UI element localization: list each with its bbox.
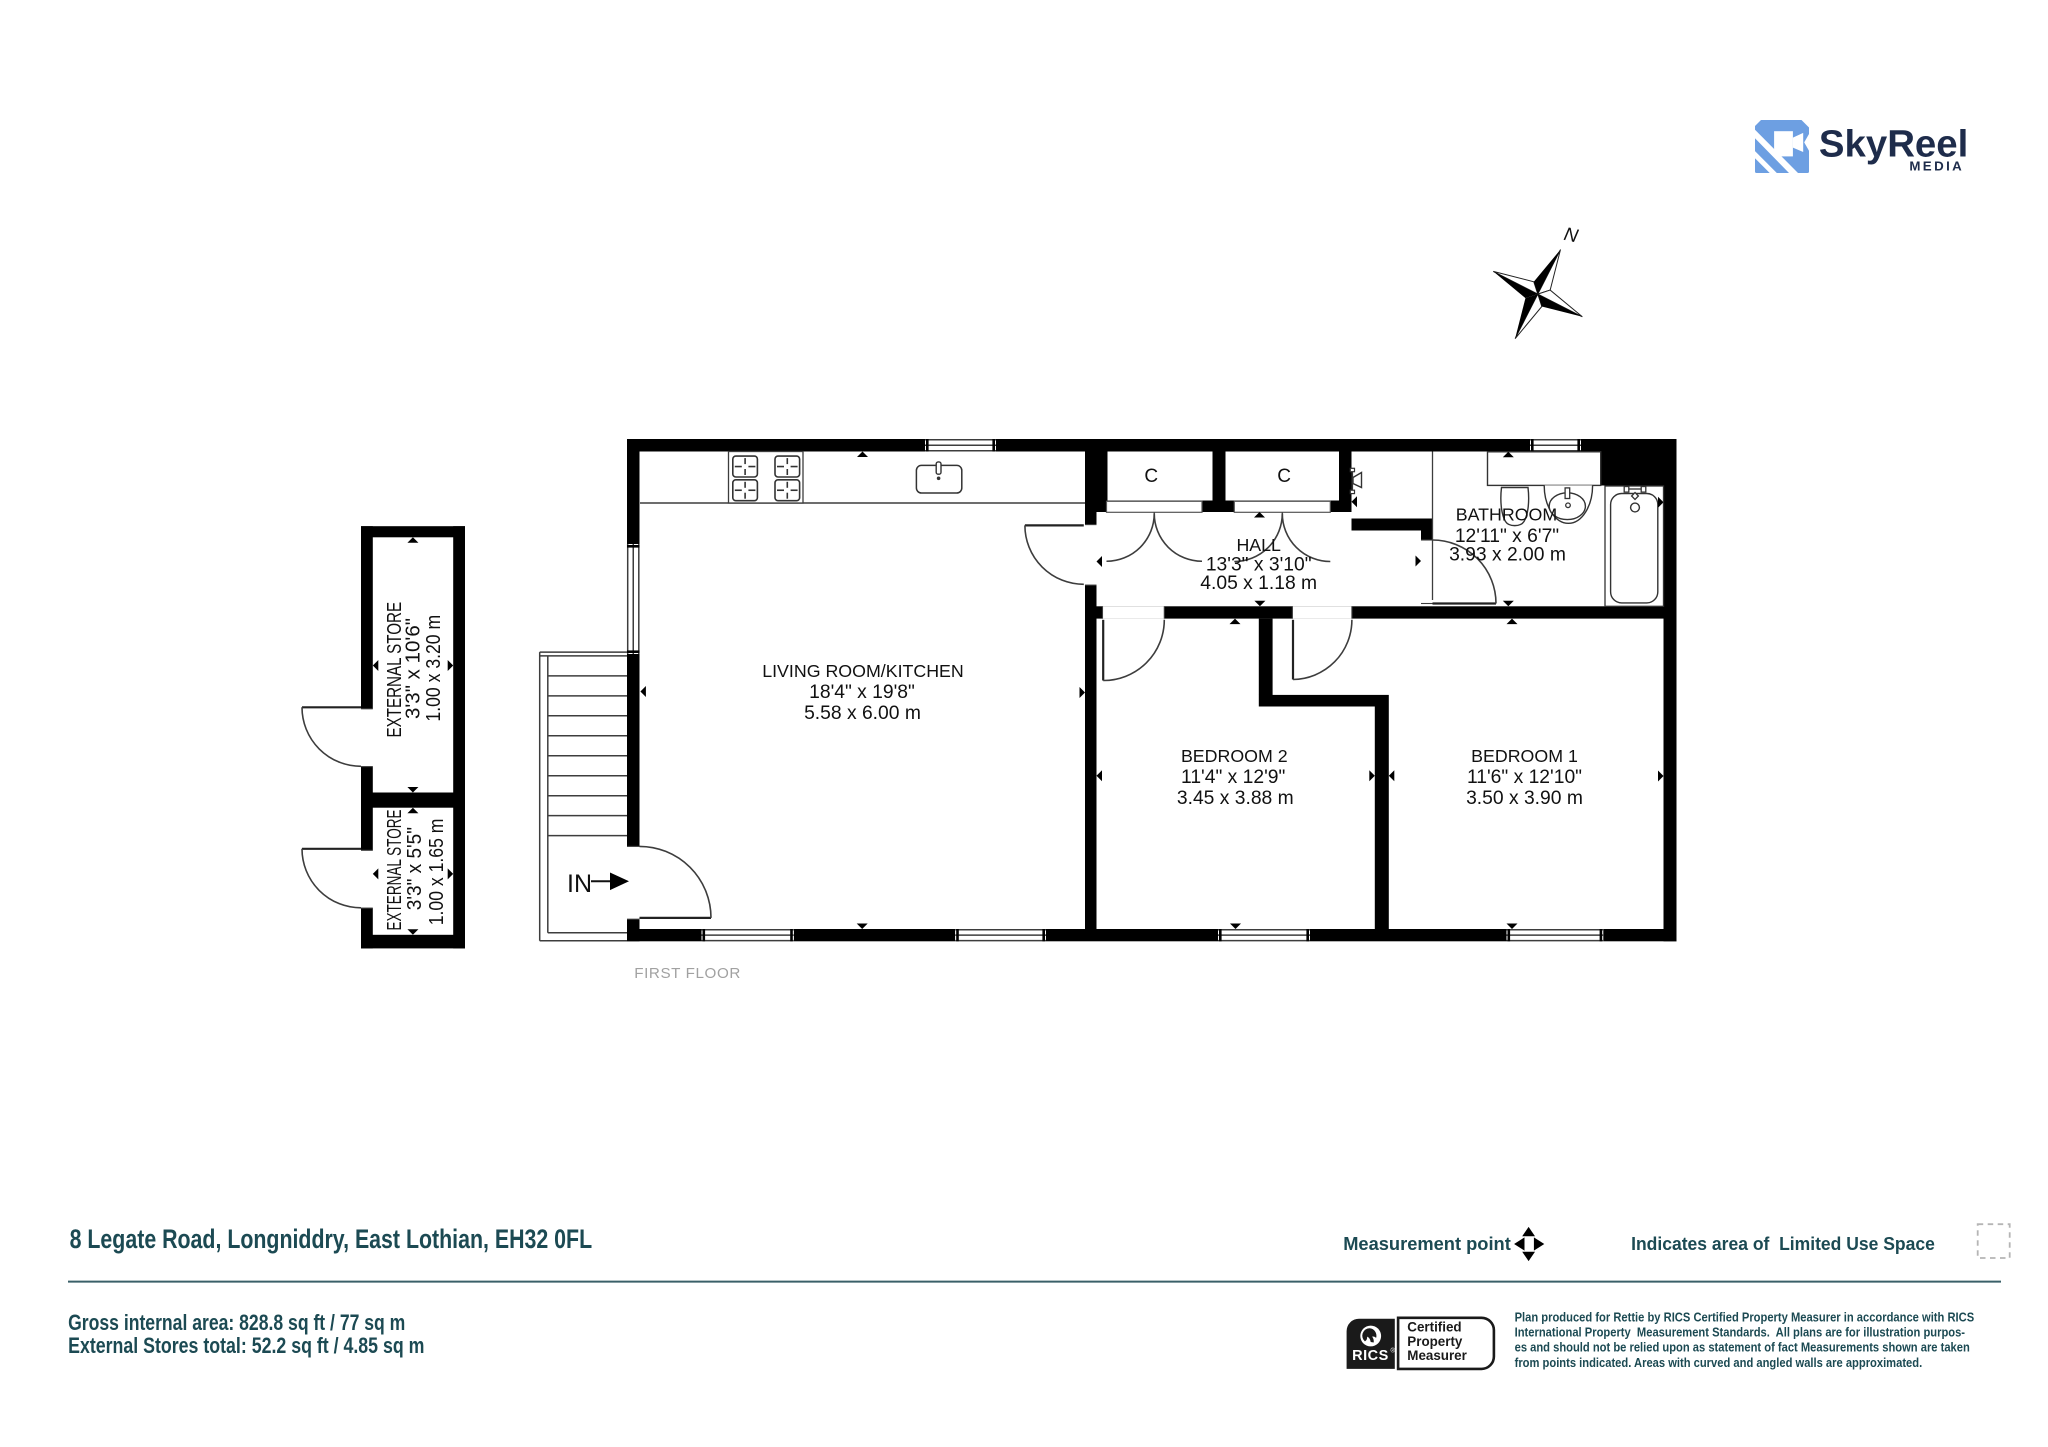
svg-text:International Property Measur: International Property Measurement Stand… bbox=[1515, 1325, 1965, 1340]
svg-text:C: C bbox=[1277, 466, 1291, 487]
svg-text:EXTERNAL STORE: EXTERNAL STORE bbox=[382, 810, 406, 931]
svg-text:HALL: HALL bbox=[1236, 535, 1281, 555]
svg-text:8 Legate Road, Longniddry, Eas: 8 Legate Road, Longniddry, East Lothian,… bbox=[70, 1225, 593, 1255]
svg-text:4.05 x 1.18 m: 4.05 x 1.18 m bbox=[1200, 573, 1317, 594]
svg-text:3.93 x 2.00 m: 3.93 x 2.00 m bbox=[1449, 545, 1566, 566]
svg-text:Measurement point: Measurement point bbox=[1343, 1233, 1511, 1254]
svg-text:BEDROOM 2: BEDROOM 2 bbox=[1181, 746, 1288, 766]
svg-text:C: C bbox=[1144, 466, 1158, 487]
svg-text:BATHROOM: BATHROOM bbox=[1456, 504, 1557, 524]
svg-text:Plan produced for Rettie by RI: Plan produced for Rettie by RICS Certifi… bbox=[1515, 1310, 1975, 1325]
svg-text:1.00 x 1.65 m: 1.00 x 1.65 m bbox=[426, 819, 449, 926]
svg-text:RICS: RICS bbox=[1352, 1348, 1389, 1364]
svg-text:Property: Property bbox=[1407, 1334, 1463, 1349]
svg-text:11'4" x 12'9": 11'4" x 12'9" bbox=[1181, 767, 1285, 788]
svg-text:BEDROOM 1: BEDROOM 1 bbox=[1471, 746, 1578, 766]
svg-text:3'3" x 10'6": 3'3" x 10'6" bbox=[401, 618, 424, 719]
svg-text:External Stores total: 52.2 sq: External Stores total: 52.2 sq ft / 4.85… bbox=[68, 1334, 424, 1358]
svg-text:3'3" x 5'5": 3'3" x 5'5" bbox=[403, 827, 426, 910]
svg-text:es and should not be relied up: es and should not be relied upon as stat… bbox=[1515, 1340, 1970, 1355]
svg-text:11'6" x 12'10": 11'6" x 12'10" bbox=[1467, 767, 1582, 788]
svg-text:from points indicated. Areas w: from points indicated. Areas with curved… bbox=[1515, 1355, 1923, 1370]
svg-text:Gross internal area: 828.8 sq: Gross internal area: 828.8 sq ft / 77 sq… bbox=[68, 1311, 405, 1335]
svg-text:FIRST FLOOR: FIRST FLOOR bbox=[634, 965, 741, 982]
svg-text:18'4" x 19'8": 18'4" x 19'8" bbox=[809, 682, 915, 703]
svg-text:1.00 x 3.20 m: 1.00 x 3.20 m bbox=[423, 615, 446, 722]
svg-text:3.50 x 3.90 m: 3.50 x 3.90 m bbox=[1466, 788, 1583, 809]
svg-text:Certified: Certified bbox=[1407, 1320, 1461, 1335]
svg-text:5.58 x 6.00 m: 5.58 x 6.00 m bbox=[804, 703, 921, 724]
svg-text:LIVING ROOM/KITCHEN: LIVING ROOM/KITCHEN bbox=[762, 661, 964, 681]
svg-text:®: ® bbox=[1391, 1348, 1396, 1355]
svg-text:IN: IN bbox=[567, 870, 592, 898]
svg-text:Measurer: Measurer bbox=[1407, 1348, 1467, 1363]
svg-text:3.45 x 3.88 m: 3.45 x 3.88 m bbox=[1177, 788, 1294, 809]
svg-text:MEDIA: MEDIA bbox=[1909, 158, 1964, 173]
svg-text:Indicates area of Limited Use: Indicates area of Limited Use Space bbox=[1631, 1234, 1935, 1254]
